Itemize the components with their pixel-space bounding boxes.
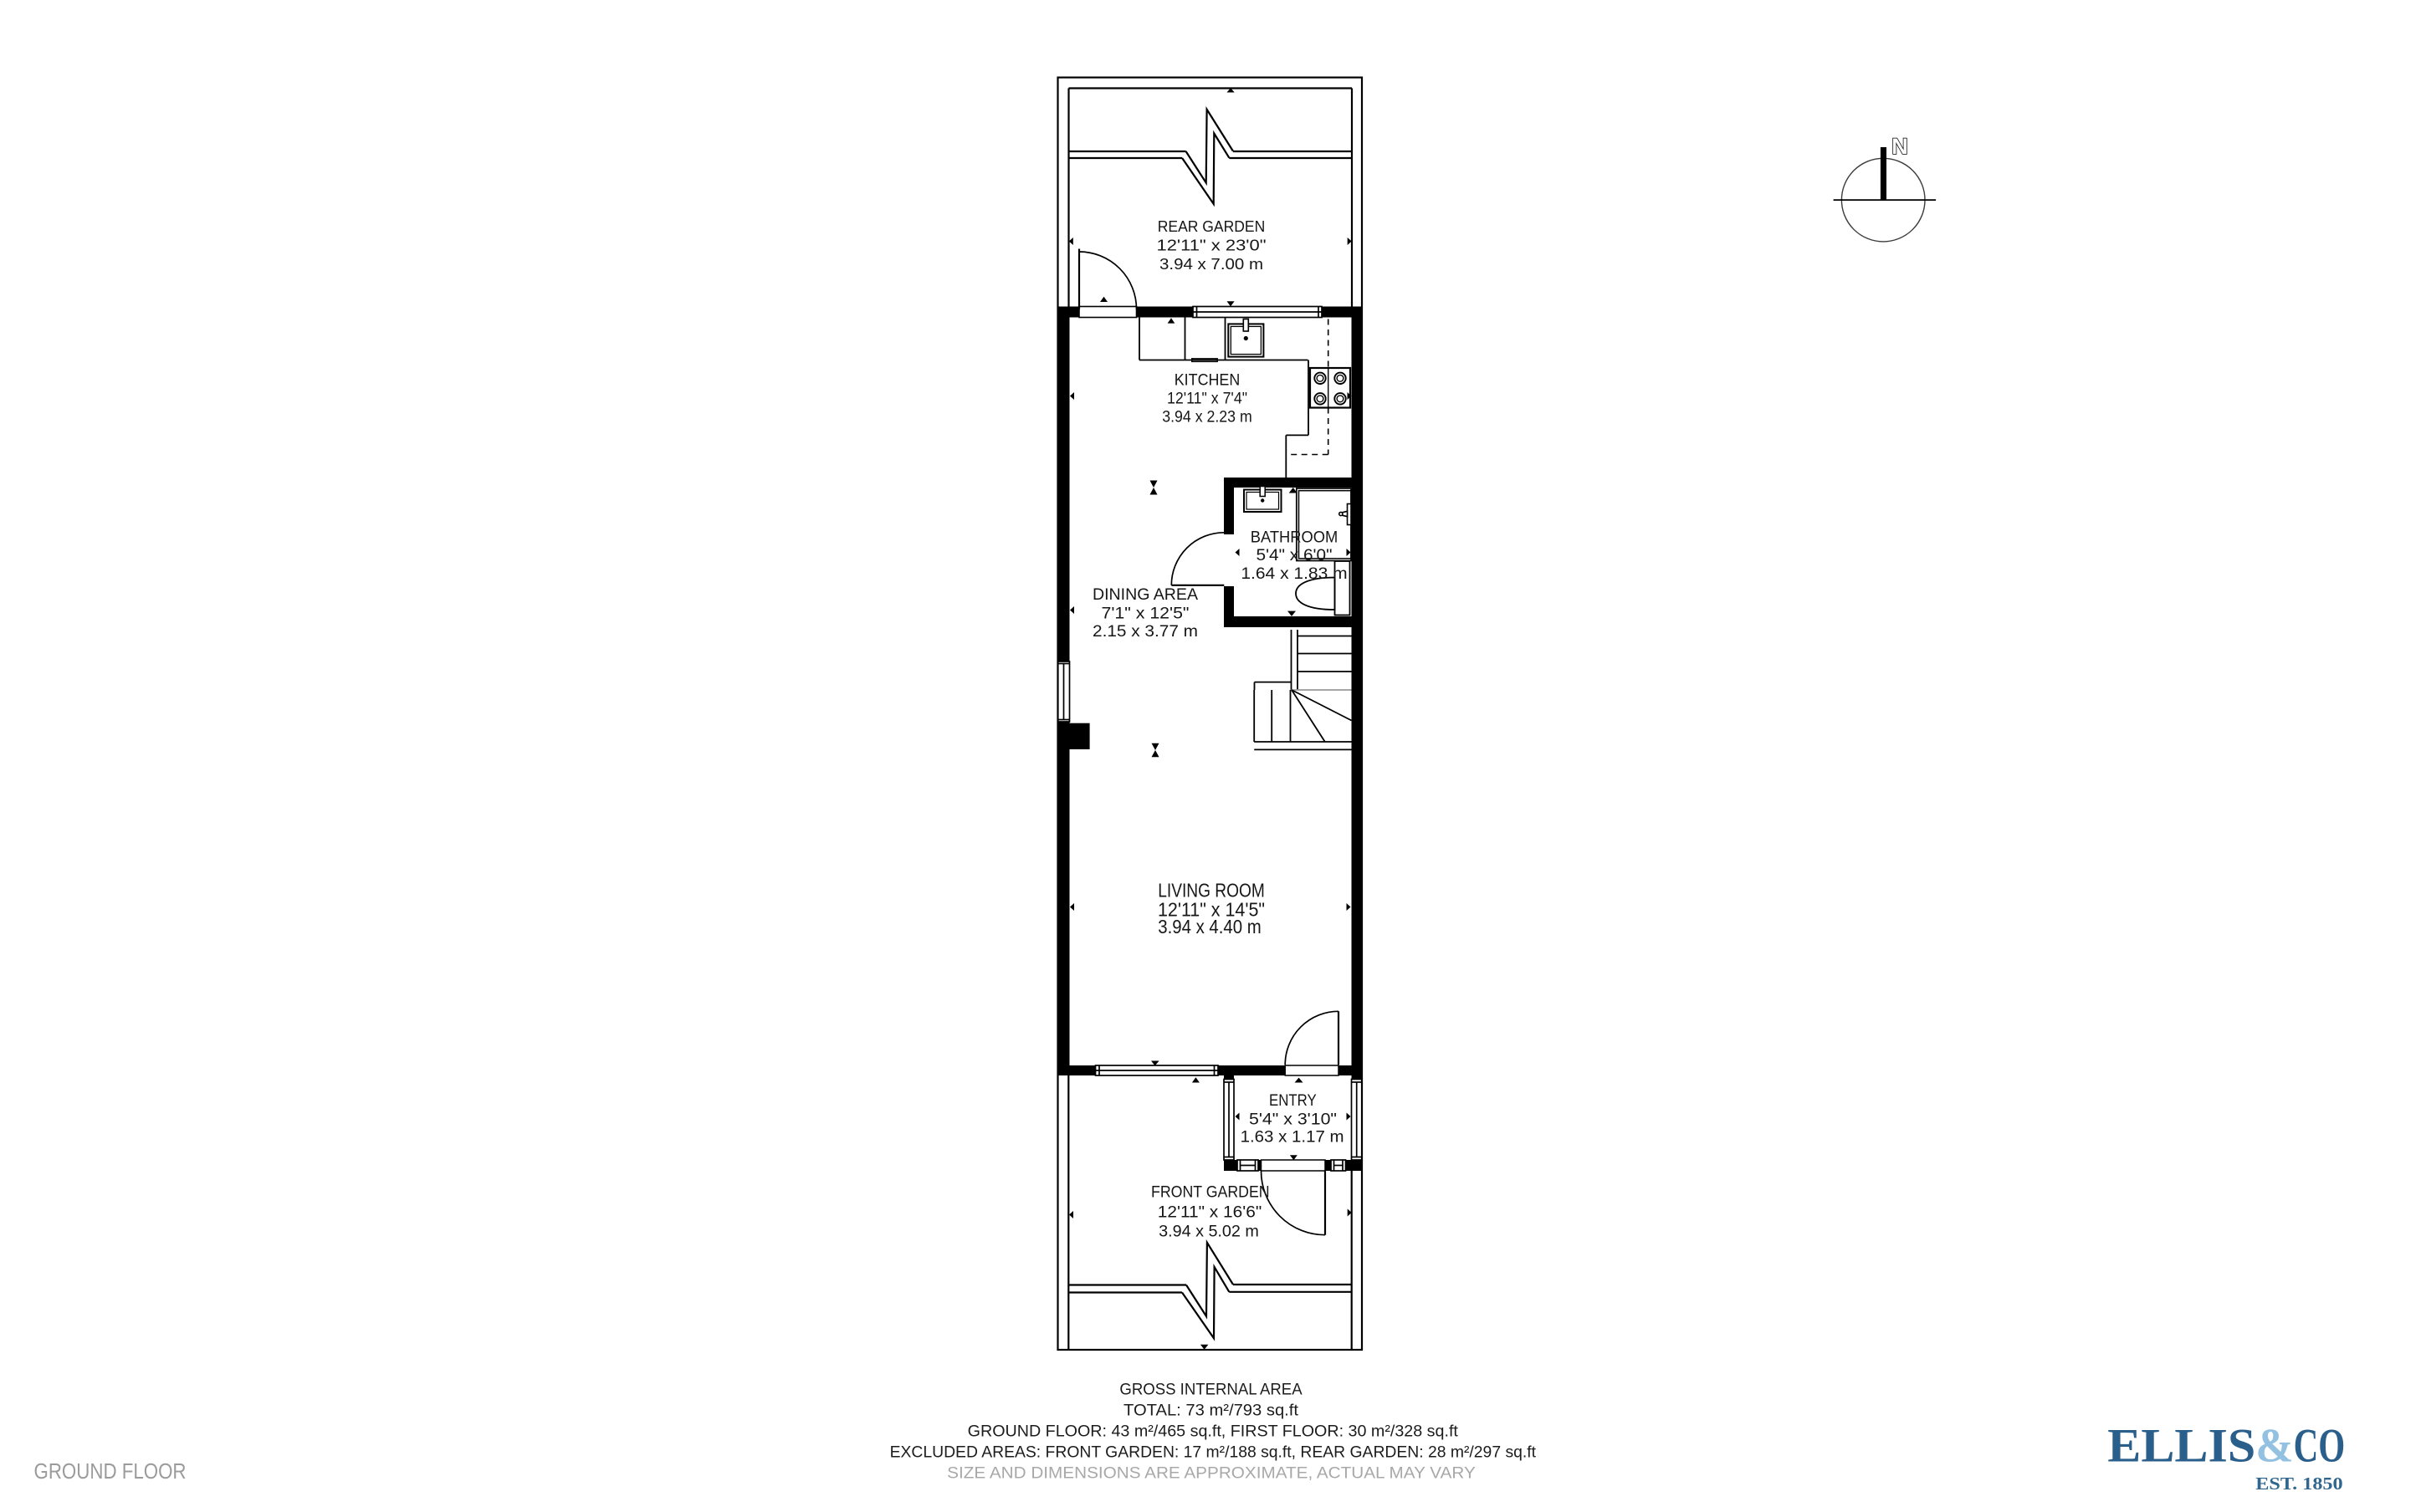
- svg-text:REAR GARDEN: REAR GARDEN: [1158, 217, 1266, 235]
- svg-text:LIVING ROOM: LIVING ROOM: [1158, 879, 1265, 901]
- svg-text:12'11" x 23'0": 12'11" x 23'0": [1157, 237, 1267, 254]
- svg-text:EXCLUDED AREAS: FRONT GARDEN:: EXCLUDED AREAS: FRONT GARDEN: 17 m²/188 …: [890, 1444, 1537, 1462]
- svg-text:12'11" x 7'4": 12'11" x 7'4": [1167, 390, 1247, 408]
- svg-text:FRONT GARDEN: FRONT GARDEN: [1151, 1184, 1270, 1202]
- svg-text:12'11" x 16'6": 12'11" x 16'6": [1158, 1204, 1262, 1222]
- svg-text:3.94 x 2.23 m: 3.94 x 2.23 m: [1162, 407, 1252, 426]
- svg-text:BATHROOM: BATHROOM: [1251, 528, 1338, 546]
- svg-text:3.94 x 5.02 m: 3.94 x 5.02 m: [1159, 1223, 1259, 1241]
- svg-text:GROUND FLOOR: GROUND FLOOR: [34, 1458, 187, 1484]
- svg-text:&: &: [2255, 1420, 2293, 1473]
- svg-text:ENTRY: ENTRY: [1269, 1091, 1317, 1110]
- svg-text:KITCHEN: KITCHEN: [1175, 370, 1241, 389]
- svg-text:7'1" x 12'5": 7'1" x 12'5": [1102, 605, 1190, 623]
- svg-text:DINING AREA: DINING AREA: [1093, 586, 1198, 604]
- svg-text:1.64 x 1.83 m: 1.64 x 1.83 m: [1241, 564, 1347, 583]
- svg-text:SIZE AND DIMENSIONS ARE APPROX: SIZE AND DIMENSIONS ARE APPROXIMATE, ACT…: [947, 1465, 1476, 1483]
- svg-text:ELLIS: ELLIS: [2107, 1420, 2255, 1473]
- svg-text:N: N: [1891, 134, 1908, 159]
- svg-text:TOTAL: 73 m²/793 sq.ft: TOTAL: 73 m²/793 sq.ft: [1123, 1402, 1299, 1420]
- svg-text:GROSS INTERNAL AREA: GROSS INTERNAL AREA: [1119, 1382, 1303, 1399]
- svg-text:3.94 x 4.40 m: 3.94 x 4.40 m: [1158, 916, 1262, 937]
- svg-text:GROUND FLOOR: 43 m²/465 sq.ft,: GROUND FLOOR: 43 m²/465 sq.ft, FIRST FLO…: [968, 1423, 1459, 1441]
- svg-text:EST. 1850: EST. 1850: [2255, 1474, 2342, 1494]
- svg-text:2.15 x 3.77 m: 2.15 x 3.77 m: [1093, 623, 1198, 641]
- svg-text:5'4" x 6'0": 5'4" x 6'0": [1257, 546, 1333, 564]
- svg-text:CO: CO: [2294, 1420, 2346, 1473]
- svg-text:1.63 x 1.17 m: 1.63 x 1.17 m: [1241, 1128, 1344, 1147]
- svg-text:3.94 x 7.00 m: 3.94 x 7.00 m: [1159, 255, 1263, 273]
- svg-text:5'4" x 3'10": 5'4" x 3'10": [1249, 1111, 1337, 1129]
